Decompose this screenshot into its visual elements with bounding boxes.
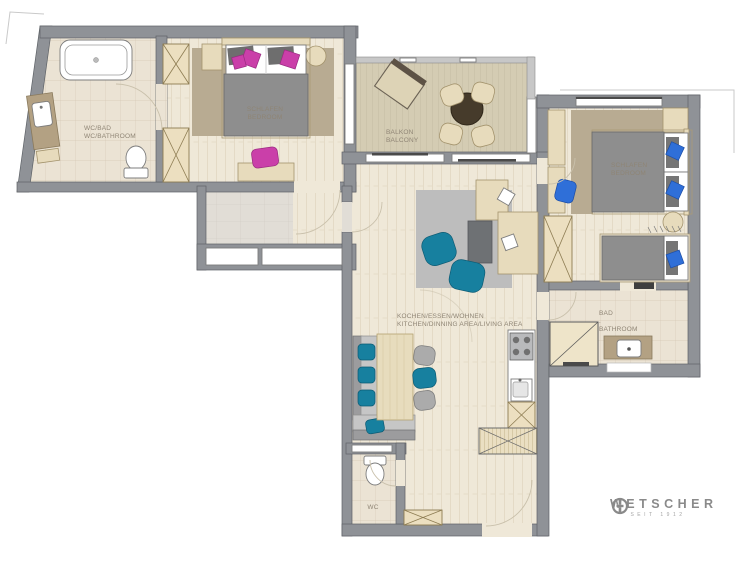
nightstand-stool-right <box>306 46 326 66</box>
bathtub-drain <box>94 58 99 63</box>
wc-door-opening <box>396 460 405 486</box>
nightstand-left <box>202 44 222 70</box>
vestibule-window-left <box>206 248 258 265</box>
hall-passage-opening <box>537 158 549 184</box>
wc-label: WC <box>367 488 378 528</box>
bathroom2-label: BAD.BATHROOM <box>599 294 638 350</box>
balcony-side-glass <box>527 97 536 153</box>
stool-bedroom2 <box>663 212 683 232</box>
dining-chair-teal <box>412 367 437 389</box>
balcony-label: BALKONBALCONY <box>386 113 418 161</box>
coffee-table <box>468 221 492 263</box>
sliding-glass-panel-right <box>458 159 516 162</box>
railing-post-right <box>460 58 476 62</box>
bedroom2-window-frame <box>576 97 662 99</box>
bedroom2-label: SCHLAFENBEDROOM <box>611 146 647 194</box>
bathroom2-door-opening <box>537 292 549 320</box>
railing-post-left <box>400 58 416 62</box>
wardrobe-bedroom1-top <box>163 44 189 84</box>
dining-chair-gray <box>413 390 436 412</box>
balcony-railing-top <box>356 57 534 63</box>
bedroom2-rug-side <box>571 130 593 214</box>
toilet-wc <box>364 456 386 485</box>
kitchen-tall-cabinet <box>508 402 535 428</box>
bedroom1-label: SCHLAFENBEDROOM <box>247 90 283 138</box>
bathroom1-label: WC/BADWC/BATHROOM <box>84 109 136 157</box>
nightstand-bedroom2 <box>663 108 688 132</box>
balcony-railing-right <box>527 57 535 99</box>
kitchen-sink <box>511 379 532 402</box>
vestibule-window-right <box>262 248 342 265</box>
wetscher-logo-icon <box>610 496 630 516</box>
bedroom2-sliding-door <box>634 282 654 289</box>
dining-chair-gray <box>413 345 436 367</box>
single-bed-bedroom2 <box>600 234 690 282</box>
wall-north <box>40 26 358 38</box>
desk-chair-magenta <box>251 146 279 168</box>
duvet <box>602 236 664 280</box>
wall-living-east <box>537 152 549 536</box>
floorplan: WC/BADWC/BATHROOM SCHLAFENBEDROOM BALKON… <box>0 0 754 565</box>
sideboard <box>479 428 537 454</box>
living-label: KOCHEN/ESSEN/WOHNENKITCHEN/DINNING AREA/… <box>397 297 523 345</box>
brand-logo: WETSCHER SEIT 1912 <box>610 496 706 518</box>
wall-living-west-stub <box>342 186 352 202</box>
vestibule-floor <box>203 186 293 246</box>
entry-wardrobe <box>404 510 442 525</box>
vestibule-door-opening <box>342 202 352 232</box>
bench-cushion-teal <box>358 344 375 360</box>
vestibule-hall-floor <box>293 186 342 246</box>
bench-cushion-teal <box>358 367 375 383</box>
bench-cushion-teal <box>358 390 375 406</box>
magenta-cushion <box>232 55 247 70</box>
wall-living-west <box>342 232 352 536</box>
bedroom1-door-opening <box>294 181 340 193</box>
bath-mat <box>607 363 651 372</box>
floorplan-drawing <box>0 0 754 565</box>
closet-bedroom2 <box>548 110 565 165</box>
bench-back-corner <box>353 430 415 440</box>
wc-pocket-door <box>352 445 392 452</box>
entry-door-opening <box>482 523 532 537</box>
shower <box>550 322 598 366</box>
wardrobe-bedroom2 <box>544 216 572 282</box>
dining-table <box>377 334 413 420</box>
wardrobe-bedroom1-bottom <box>163 128 189 182</box>
bedroom1-east-window <box>345 64 354 144</box>
